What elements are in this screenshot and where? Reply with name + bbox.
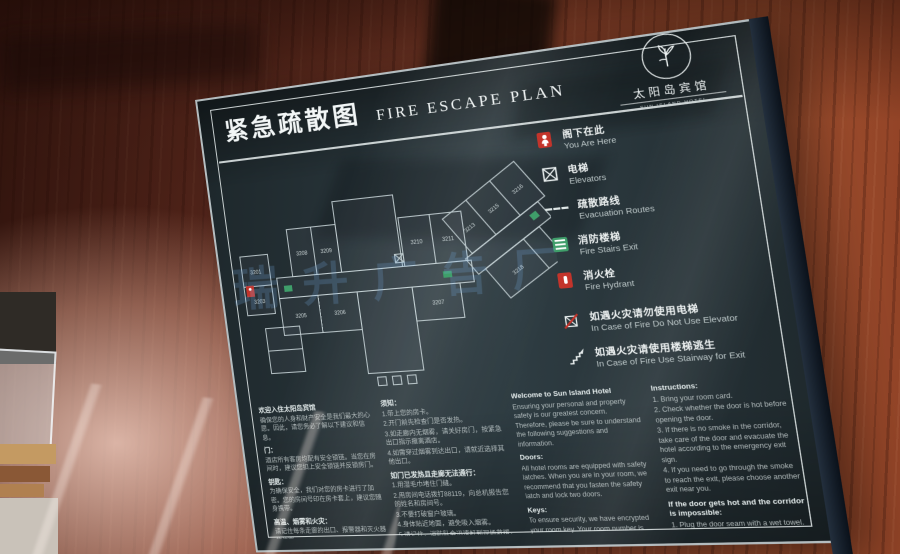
column-paragraph: 2.用房间电话拨打88119，向总机报告您的姓名和房间号。	[393, 488, 514, 510]
svg-text:3208: 3208	[296, 250, 308, 257]
column-paragraph: 4. If you need to go through the smoke t…	[663, 462, 805, 496]
svg-text:3207: 3207	[432, 299, 445, 307]
evacuation-route-icon	[544, 201, 568, 206]
you-are-here-icon	[534, 131, 555, 149]
legend-item: 如遇火灾请使用楼梯逃生 In Case of Fire Use Stairway…	[566, 334, 786, 371]
column-paragraph: 3. If there is no smoke in the corridor,…	[657, 421, 800, 466]
column-paragraph: All hotel rooms are equipped with safety…	[521, 460, 654, 502]
column-paragraph: Ensuring your personal and property safe…	[512, 397, 646, 450]
svg-text:3203: 3203	[254, 299, 266, 306]
elevator-icon	[539, 166, 560, 182]
no-elevator-icon	[561, 313, 582, 330]
photo-of-fire-escape-sign: 紧急疏散图 FIRE ESCAPE PLAN 太阳岛宾馆 SUN ISLAND …	[0, 0, 900, 554]
column-english-welcome: Welcome to Sun Island HotelEnsuring your…	[510, 381, 659, 533]
hotel-logo: 太阳岛宾馆 SUN ISLAND HOTEL	[611, 26, 728, 112]
elevator-mark	[394, 254, 404, 263]
stairway-exit-icon	[566, 348, 587, 365]
svg-text:3209: 3209	[320, 248, 333, 255]
fire-hydrant-icon	[555, 272, 576, 289]
svg-text:3205: 3205	[295, 313, 307, 320]
column-paragraph: To ensure security, we have encrypted yo…	[528, 514, 658, 533]
wood-strip	[0, 484, 44, 497]
legend-item: 消火栓 Fire Hydrant	[555, 254, 774, 295]
svg-text:3211: 3211	[442, 236, 455, 244]
legend: 阁下在此 You Are Here 电梯 Elevators 疏散路线 Ev	[534, 106, 788, 384]
floor-plan: 3213 3215 3216 3218 3201 3203 3205 3206 …	[222, 130, 575, 400]
svg-text:3201: 3201	[250, 269, 262, 276]
svg-text:3206: 3206	[334, 310, 347, 317]
legend-item: 疏散路线 Evacuation Routes	[544, 180, 762, 225]
column-paragraph: 1. Plug the door seam with a wet towel.	[671, 518, 810, 531]
column-heading: If the door gets hot and the corridor is…	[668, 497, 809, 520]
logo-plant-icon	[638, 30, 694, 82]
svg-text:3210: 3210	[410, 239, 423, 247]
legend-item: 消防楼梯 Fire Stairs Exit	[549, 216, 767, 259]
you-are-here-marker	[246, 285, 255, 297]
column-english-instructions: Instructions:1. Bring your room card.2. …	[650, 373, 810, 531]
fire-stairs-icon	[549, 237, 570, 253]
title-chinese: 紧急疏散图	[223, 101, 362, 146]
